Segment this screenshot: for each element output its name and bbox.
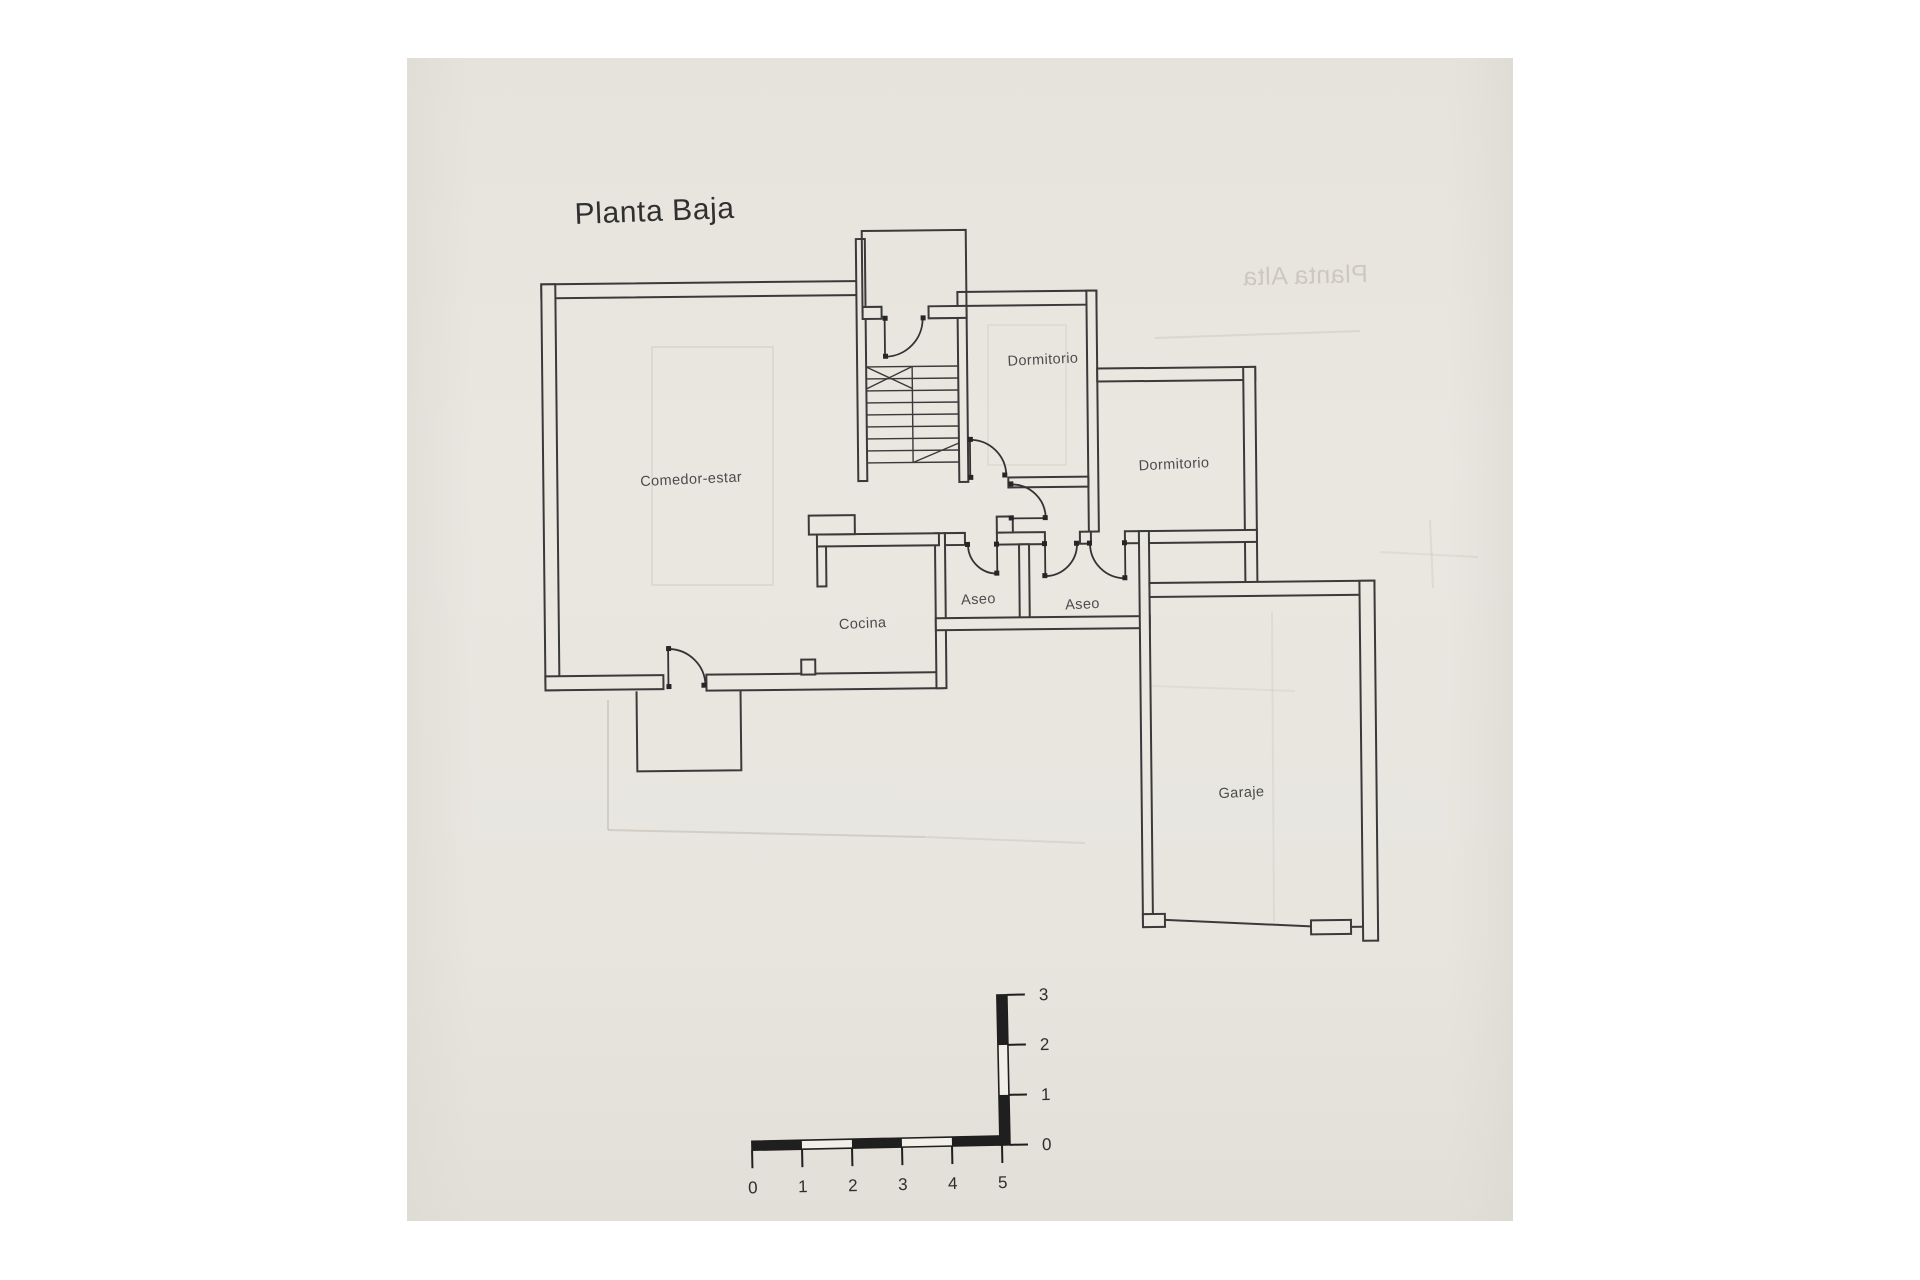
scale-h-label-1: 1: [798, 1177, 808, 1196]
room-label-dormitorio-2: Dormitorio: [1138, 455, 1210, 474]
scale-h-label-0: 0: [748, 1178, 758, 1197]
wall-dorm2-right: [1243, 367, 1257, 589]
ghost-title-planta-alta: Planta Alta: [1242, 260, 1368, 291]
wall-vestibule-stub-left: [863, 307, 882, 319]
wall-hall-south-a: [945, 533, 965, 545]
wall-dorm2-top: [1097, 367, 1255, 382]
page-title: Planta Baja: [574, 192, 735, 231]
wall-aseo-west: [935, 533, 947, 688]
room-label-garaje: Garaje: [1218, 784, 1265, 802]
pilaster-kitchen: [809, 515, 855, 534]
scale-v-label-0: 0: [1042, 1135, 1052, 1154]
scale-v-label-2: 2: [1040, 1035, 1050, 1054]
room-label-dormitorio-1: Dormitorio: [1007, 351, 1079, 370]
wall-garage-bottom-stub-right: [1311, 920, 1351, 934]
scale-h-label-2: 2: [848, 1176, 858, 1195]
wall-garage-top: [1149, 581, 1374, 597]
room-label-aseo-2: Aseo: [1065, 596, 1100, 614]
wall-dorm1-top: [957, 291, 1096, 306]
wall-vestibule-stub-right: [929, 306, 967, 318]
pilaster-bottom-wall: [801, 660, 815, 675]
scale-h-label-4: 4: [948, 1174, 958, 1193]
wall-comedor-top: [541, 281, 864, 298]
scale-h-label-5: 5: [998, 1173, 1008, 1192]
room-label-aseo-1: Aseo: [961, 591, 996, 609]
scale-v-label-3: 3: [1039, 985, 1049, 1004]
wall-comedor-left: [541, 284, 559, 690]
wall-dorm1-right: [1086, 291, 1099, 532]
floor-plan-svg: Planta Alta Planta Baja: [0, 0, 1920, 1280]
wall-comedor-bottom-left: [545, 675, 663, 690]
wall-hall-south-b: [997, 532, 1045, 545]
wall-stair-right: [958, 306, 969, 482]
wall-aseo-middle: [1019, 544, 1030, 619]
scale-v-label-1: 1: [1041, 1085, 1051, 1104]
wall-kitchen-west-stub: [817, 546, 826, 586]
wall-bottom-kitchen: [706, 672, 943, 690]
wall-garage-right: [1359, 581, 1378, 941]
wall-garage-bottom-stub-left: [1143, 914, 1165, 927]
room-label-cocina: Cocina: [839, 615, 888, 633]
paper-sheet: [407, 58, 1513, 1221]
floor-plan-photo: Planta Alta Planta Baja: [0, 0, 1920, 1280]
wall-aseo-bottom: [936, 616, 1150, 630]
scale-h-label-3: 3: [898, 1175, 908, 1194]
